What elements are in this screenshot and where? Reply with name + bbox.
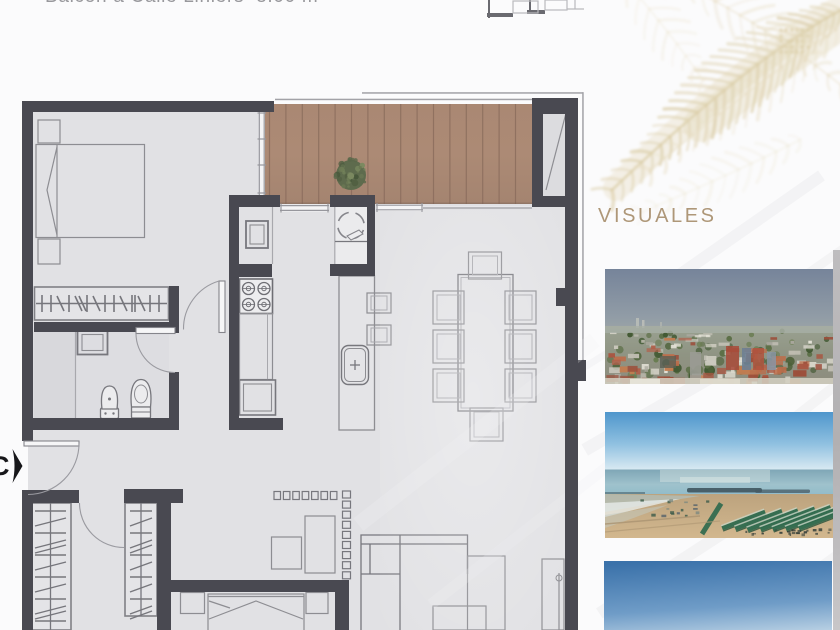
svg-text:C: C: [0, 451, 10, 481]
